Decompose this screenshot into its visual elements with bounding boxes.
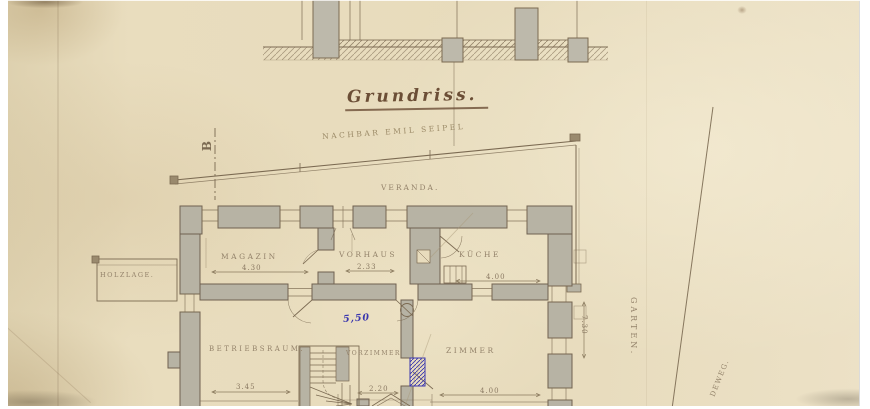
room-dim-magazin: 4.30: [242, 264, 262, 272]
building-walls: [168, 206, 572, 409]
room-dim-kueche: 4.00: [486, 273, 506, 281]
plan-linework: [0, 0, 870, 409]
room-label-vorzimmer: VORZIMMER: [346, 350, 401, 357]
foundation-section: [263, 0, 608, 62]
scanned-floor-plan: Grundriss. NACHBAR EMIL SEIPEL VERANDA. …: [0, 0, 870, 409]
room-dim-betriebsraum: 3.45: [236, 383, 256, 391]
room-label-magazin: MAGAZIN: [221, 252, 278, 261]
room-dim-vorhaus: 2.33: [357, 263, 377, 271]
section-marker-b: B: [200, 141, 214, 151]
holzlage-label: HOLZLAGE.: [100, 271, 154, 279]
scan-edge-top: [0, 0, 870, 1]
veranda-label: VERANDA.: [381, 183, 439, 192]
garten-label: GARTEN.: [629, 297, 638, 356]
window-marks: [180, 206, 586, 400]
scan-edge-left: [0, 0, 8, 409]
room-label-kueche: KÜCHE: [459, 250, 501, 259]
drawing-title: Grundriss.: [345, 85, 488, 111]
room-dim-zimmer: 4.00: [480, 387, 500, 395]
stove: [444, 266, 466, 283]
scan-edge-right: [859, 0, 870, 409]
porch-steps: [200, 394, 548, 406]
blue-pencil-annotation: 5,50: [343, 312, 371, 325]
room-label-vorhaus: VORHAUS: [339, 250, 397, 259]
room-label-betriebsraum: BETRIEBSRAUM.: [209, 345, 305, 353]
room-dim-vorzimmer: 2.20: [369, 385, 389, 393]
room-label-zimmer: ZIMMER: [446, 346, 496, 355]
garden-side-dimension: 7.30: [580, 315, 588, 335]
